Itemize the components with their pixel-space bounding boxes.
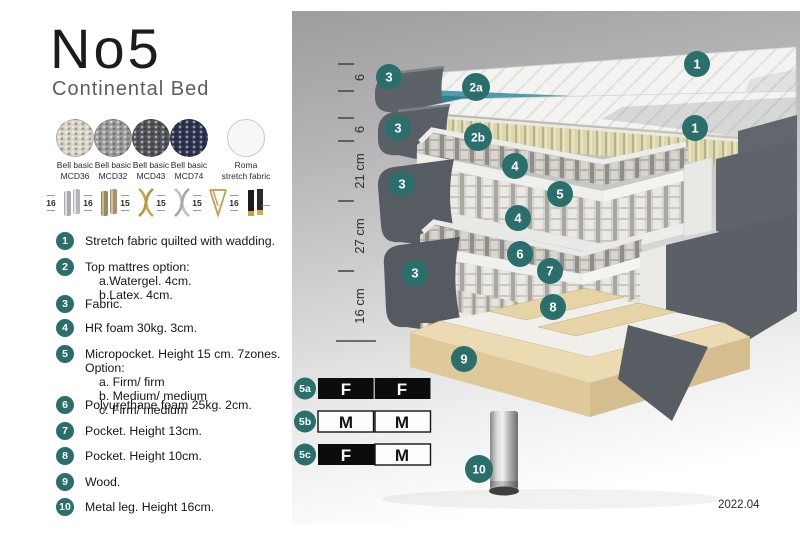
dimension-label: 21 cm [352, 153, 367, 188]
tick [121, 210, 129, 211]
list-item: 9 Wood. [56, 473, 286, 491]
diagram-panel: 6 6 21 cm 27 cm 16 cm 3 2a 1 3 2b 1 3 4 … [292, 11, 800, 524]
swatch-label: Roma [235, 160, 258, 170]
list-sub-item: a.Watergel. 4cm. [99, 274, 192, 288]
list-item-text: Polyurethane foam 25kg. 2cm. [85, 396, 252, 412]
leg-option: 15 [154, 187, 194, 219]
firmness-row-5c: 5c F M [294, 444, 431, 466]
list-item: 8 Pocket. Height 10cm. [56, 447, 286, 465]
list-item-text: Pocket. Height 10cm. [85, 447, 202, 463]
tick [262, 205, 270, 206]
list-item: 7 Pocket. Height 13cm. [56, 422, 286, 440]
leg-height: 15 [192, 196, 201, 210]
list-item: 4 HR foam 30kg. 3cm. [56, 319, 286, 337]
list-item: 3 Fabric. [56, 295, 286, 313]
leg-height: 15 [156, 196, 165, 210]
list-item: 10 Metal leg. Height 16cm. [56, 498, 286, 516]
leg-option: 15 [118, 187, 158, 219]
firmness-letter: F [397, 380, 407, 399]
list-item-text: Pocket. Height 13cm. [85, 422, 202, 438]
firmness-letter: M [339, 413, 353, 432]
dimension-label: 6 [352, 74, 367, 81]
bed-cutaway-diagram: 6 6 21 cm 27 cm 16 cm 3 2a 1 3 2b 1 3 4 … [292, 11, 800, 524]
leg-height: 16 [229, 196, 238, 210]
svg-text:3: 3 [385, 70, 392, 85]
dimension-ruler: 6 6 21 cm 27 cm 16 cm [336, 64, 376, 341]
callout-4-top: 4 [502, 153, 528, 179]
list-item-number: 4 [56, 319, 74, 337]
list-item-number: 3 [56, 295, 74, 313]
callout-2a: 2a [462, 73, 490, 101]
leg-option: 15 [190, 187, 230, 219]
list-item-number: 5 [56, 345, 74, 363]
leg-black-gold-tip-icon [243, 187, 267, 219]
svg-text:8: 8 [549, 300, 556, 315]
metal-leg-front [490, 411, 518, 491]
leg-height: 16 [83, 196, 92, 210]
fabric-swatch-circle [227, 119, 265, 157]
callout-3-topper: 3 [376, 64, 402, 90]
list-item-number: 1 [56, 232, 74, 250]
list-item-text: Wood. [85, 473, 120, 489]
swatch-label: Bell basic [171, 160, 207, 170]
svg-text:4: 4 [511, 159, 519, 174]
list-item-text: Stretch fabric quilted with wadding. [85, 232, 275, 248]
firmness-row-5b: 5b M M [294, 411, 431, 433]
svg-text:4: 4 [514, 211, 522, 226]
callout-7: 7 [537, 258, 563, 284]
list-sub-item: a. Firm/ firm [99, 375, 286, 389]
svg-text:1: 1 [691, 121, 698, 136]
svg-text:1: 1 [693, 57, 700, 72]
page-subtitle: Continental Bed [52, 78, 209, 101]
svg-text:7: 7 [546, 264, 553, 279]
page-title: No5 [50, 16, 162, 81]
callout-2b: 2b [464, 123, 492, 151]
firmness-letter: F [341, 380, 351, 399]
dimension-label: 16 cm [352, 288, 367, 323]
list-item: 1 Stretch fabric quilted with wadding. [56, 232, 286, 250]
callout-6: 6 [507, 241, 533, 267]
tick [157, 210, 165, 211]
list-item-text: Fabric. [85, 295, 123, 311]
callout-1-top: 1 [684, 51, 710, 77]
leg-option: 16 [227, 187, 267, 219]
list-item-text: Top mattres option: [85, 260, 190, 274]
svg-text:3: 3 [394, 121, 401, 136]
fabric-swatch: Bell basicMCD74 [157, 119, 221, 181]
version-stamp: 2022.04 [718, 499, 760, 511]
tick [84, 210, 92, 211]
list-item-text: HR foam 30kg. 3cm. [85, 319, 197, 335]
firmness-letter: M [395, 446, 409, 465]
list-item-number: 8 [56, 447, 74, 465]
tick [47, 210, 55, 211]
callout-1-lower: 1 [682, 115, 708, 141]
svg-text:3: 3 [398, 177, 405, 192]
leg-option: 16 [81, 187, 121, 219]
list-item-number: 7 [56, 422, 74, 440]
list-item-text: Micropocket. Height 15 cm. 7zones. Optio… [85, 347, 280, 375]
list-item-number: 6 [56, 396, 74, 414]
list-item: 6 Polyurethane foam 25kg. 2cm. [56, 396, 286, 414]
firmness-letter: F [341, 446, 351, 465]
svg-text:3: 3 [411, 266, 418, 281]
list-item-number: 2 [56, 258, 74, 276]
list-item-number: 9 [56, 473, 74, 491]
callout-8: 8 [540, 294, 566, 320]
fabric-swatch-circle [170, 119, 208, 157]
callout-3-box: 3 [402, 260, 428, 286]
firmness-row-label: 5b [299, 416, 311, 428]
callout-5: 5 [547, 181, 573, 207]
callout-3-mattress: 3 [389, 171, 415, 197]
callout-3-latex: 3 [385, 115, 411, 141]
leg-height: 16 [46, 196, 55, 210]
dimension-label: 6 [352, 126, 367, 133]
list-item-text: Metal leg. Height 16cm. [85, 498, 214, 514]
svg-text:9: 9 [460, 352, 467, 367]
list-item-number: 10 [56, 498, 74, 516]
svg-text:6: 6 [516, 247, 523, 262]
svg-text:2a: 2a [469, 81, 483, 95]
foam-corner-post [684, 157, 712, 237]
svg-text:10: 10 [472, 463, 486, 477]
tick [230, 210, 238, 211]
dimension-label: 27 cm [352, 218, 367, 253]
tick [193, 210, 201, 211]
svg-text:2b: 2b [471, 131, 485, 145]
fabric-swatch: Romastretch fabric [214, 119, 278, 181]
leg-height: 15 [120, 196, 129, 210]
firmness-letter: M [395, 413, 409, 432]
firmness-row-5a: 5a F F [294, 378, 431, 400]
firmness-row-label: 5a [299, 383, 311, 395]
callout-9: 9 [451, 346, 477, 372]
svg-text:5: 5 [556, 187, 563, 202]
callout-4-bottom: 4 [505, 205, 531, 231]
spec-sheet: No5 Continental Bed Bell basicMCD36 Bell… [0, 0, 800, 533]
callout-10: 10 [465, 455, 493, 483]
firmness-row-label: 5c [299, 449, 311, 461]
leg-option: 16 [44, 187, 84, 219]
